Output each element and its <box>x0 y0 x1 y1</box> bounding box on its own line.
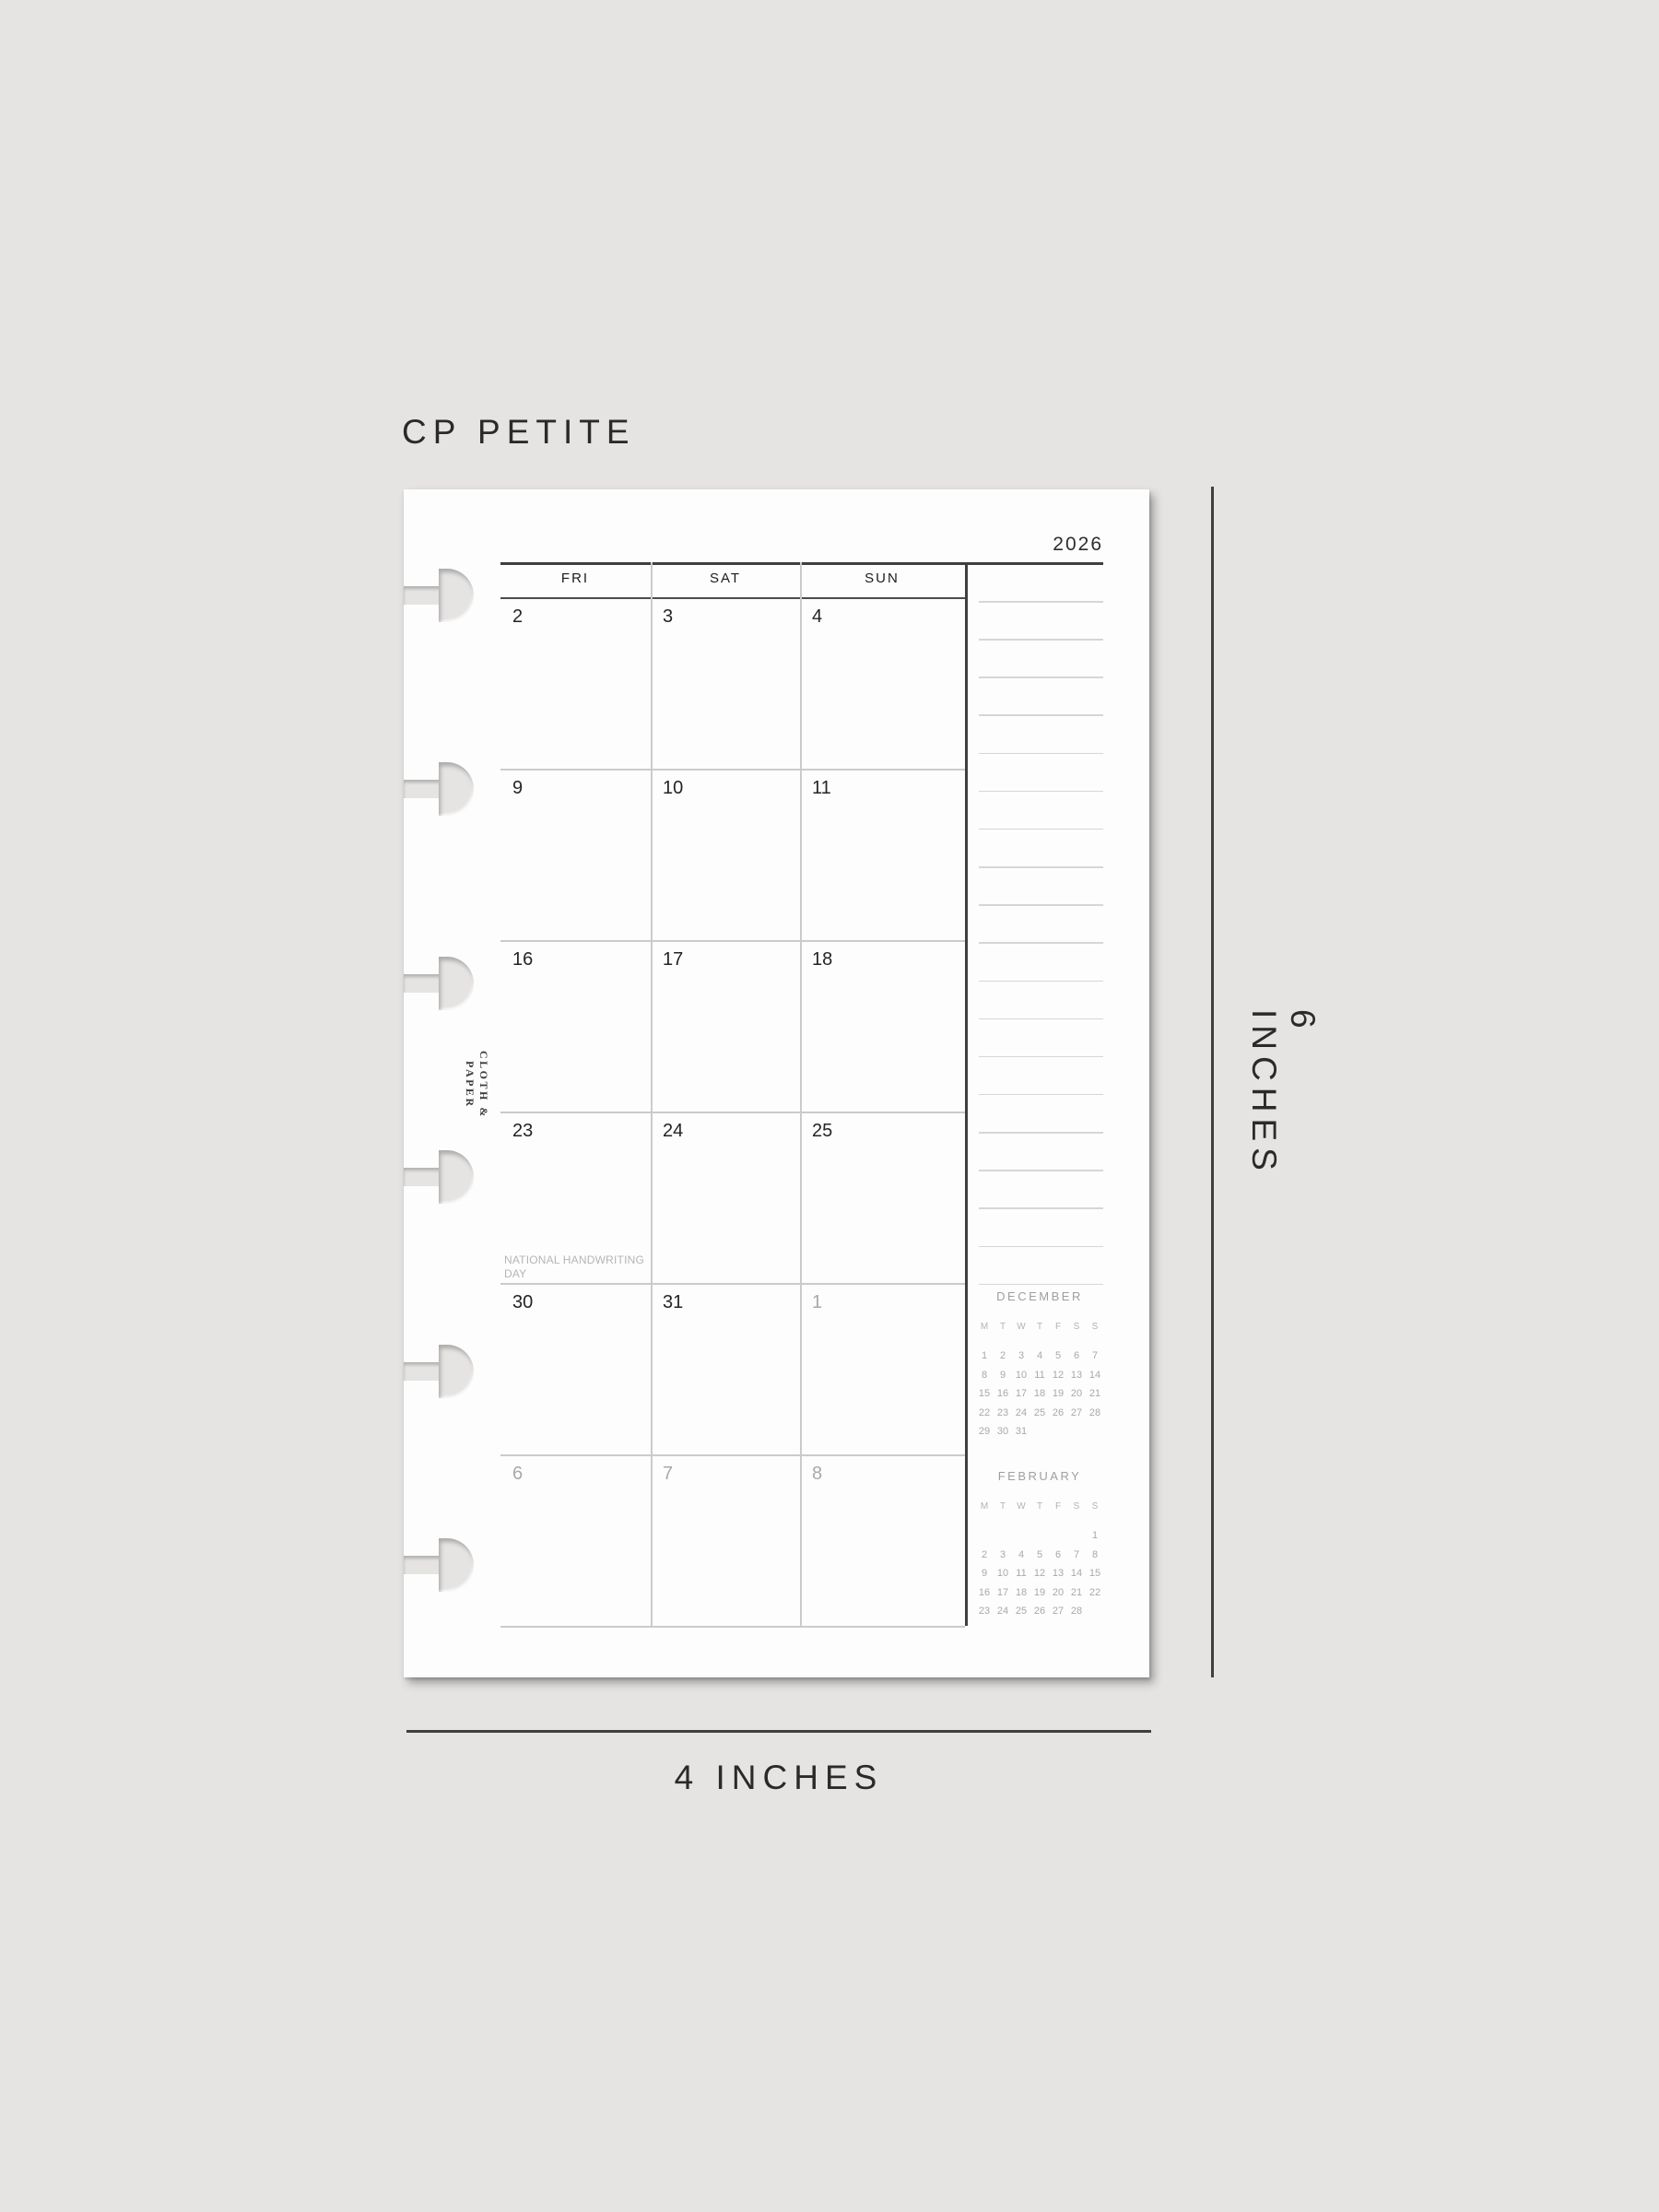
notes-line <box>979 1284 1103 1286</box>
mini-calendar-day <box>1067 1526 1086 1545</box>
calendar-date: 18 <box>812 949 832 971</box>
header-underline <box>500 597 965 599</box>
mini-week-row: 1234567 <box>975 1347 1104 1365</box>
mini-calendar-day: 12 <box>1049 1366 1067 1384</box>
mini-calendar-day: 3 <box>1012 1347 1030 1365</box>
mini-day-header: F <box>1049 1498 1067 1516</box>
mini-calendar-title: DECEMBER <box>975 1289 1104 1303</box>
notes-line <box>979 942 1103 944</box>
mini-calendar-day: 18 <box>1030 1384 1049 1403</box>
mini-week-row: 232425262728 <box>975 1602 1104 1620</box>
notes-line <box>979 677 1103 678</box>
disc-slot <box>404 974 441 993</box>
mini-calendar-day <box>1067 1422 1086 1441</box>
mini-calendar-day <box>1049 1526 1067 1545</box>
calendar-date: 11 <box>812 778 831 799</box>
mini-calendar-day: 23 <box>994 1404 1012 1422</box>
mini-calendar-day: 20 <box>1049 1583 1067 1602</box>
mini-calendar-day: 8 <box>1086 1546 1104 1564</box>
mini-calendar-day <box>1086 1422 1104 1441</box>
column-line <box>800 562 802 1626</box>
width-measure-line <box>406 1730 1151 1733</box>
disc-hole <box>439 1538 474 1592</box>
notes-line <box>979 1207 1103 1209</box>
mini-calendar-day <box>1012 1526 1030 1545</box>
notes-line <box>979 1246 1103 1248</box>
calendar-date: 16 <box>512 949 533 971</box>
mini-day-header: T <box>994 1498 1012 1516</box>
mini-day-header: T <box>1030 1318 1049 1336</box>
page-year: 2026 <box>1053 534 1103 556</box>
mini-week-row: 16171819202122 <box>975 1583 1104 1602</box>
mini-day-header: S <box>1086 1498 1104 1516</box>
notes-line <box>979 1094 1103 1096</box>
mini-calendar-day: 8 <box>975 1366 994 1384</box>
mini-calendar-day: 22 <box>975 1404 994 1422</box>
mini-day-header: F <box>1049 1318 1067 1336</box>
mini-calendar-day: 10 <box>994 1564 1012 1583</box>
mini-calendar-day <box>1049 1422 1067 1441</box>
mini-calendar-day: 6 <box>1049 1546 1067 1564</box>
notes-line <box>979 791 1103 793</box>
mini-calendar-day: 28 <box>1067 1602 1086 1620</box>
mini-calendar-day: 21 <box>1086 1384 1104 1403</box>
mini-calendar-day <box>994 1526 1012 1545</box>
notes-line <box>979 1170 1103 1171</box>
calendar-date: 17 <box>663 949 683 971</box>
mini-calendar-day: 20 <box>1067 1384 1086 1403</box>
mini-day-header-row: MTWTFSS <box>975 1498 1104 1516</box>
notes-line <box>979 714 1103 716</box>
mini-week-row: 15161718192021 <box>975 1384 1104 1403</box>
disc-slot <box>404 1362 441 1381</box>
weekend-notes-divider <box>965 562 968 1626</box>
mini-day-header: W <box>1012 1318 1030 1336</box>
disc-slot <box>404 1556 441 1574</box>
mini-calendar-day: 22 <box>1086 1583 1104 1602</box>
mini-calendar-day <box>1086 1602 1104 1620</box>
calendar-date: 3 <box>663 606 673 628</box>
day-header: SAT <box>710 571 741 586</box>
mini-calendar-day: 28 <box>1086 1404 1104 1422</box>
mini-week-row: 293031 <box>975 1422 1104 1441</box>
grid-top-line <box>500 562 1103 565</box>
mini-day-header-row: MTWTFSS <box>975 1318 1104 1336</box>
mini-week-row: 9101112131415 <box>975 1564 1104 1583</box>
disc-hole <box>439 762 474 816</box>
mini-calendar-day: 4 <box>1012 1546 1030 1564</box>
mini-calendar-day: 31 <box>1012 1422 1030 1441</box>
calendar-date: 8 <box>812 1464 822 1485</box>
mini-calendar-day: 16 <box>975 1583 994 1602</box>
disc-slot <box>404 586 441 605</box>
mini-day-header: S <box>1067 1498 1086 1516</box>
mini-calendar-day: 4 <box>1030 1347 1049 1365</box>
width-dimension-label: 4 INCHES <box>406 1759 1151 1797</box>
mini-calendar-day: 10 <box>1012 1366 1030 1384</box>
notes-line <box>979 904 1103 906</box>
mini-calendar-day: 21 <box>1067 1583 1086 1602</box>
mini-calendar-day: 6 <box>1067 1347 1086 1365</box>
disc-slot <box>404 780 441 798</box>
calendar-date: 2 <box>512 606 523 628</box>
mini-calendar-day: 2 <box>975 1546 994 1564</box>
column-line <box>651 562 653 1626</box>
mini-calendar-day: 23 <box>975 1602 994 1620</box>
mini-calendar-day <box>975 1526 994 1545</box>
notes-line <box>979 829 1103 830</box>
mini-week-row: 1 <box>975 1526 1104 1545</box>
mini-calendar-day <box>1030 1422 1049 1441</box>
product-mockup: { "mockup": { "size_label": "CP PETITE",… <box>0 0 1659 2212</box>
row-line <box>500 1112 965 1113</box>
disc-hole <box>439 1345 474 1398</box>
notes-line <box>979 601 1103 603</box>
mini-calendar-day: 17 <box>1012 1384 1030 1403</box>
brand-logo-vertical: CLOTH & PAPER <box>466 1030 490 1140</box>
mini-calendar-day: 27 <box>1049 1602 1067 1620</box>
notes-line <box>979 1056 1103 1058</box>
mini-day-header: S <box>1086 1318 1104 1336</box>
day-header: FRI <box>561 571 589 586</box>
calendar-date: 7 <box>663 1464 673 1485</box>
mini-calendar-day: 17 <box>994 1583 1012 1602</box>
mini-calendar-day: 2 <box>994 1347 1012 1365</box>
calendar-date: 10 <box>663 778 683 799</box>
mini-calendar: FEBRUARYMTWTFSS1234567891011121314151617… <box>975 1469 1104 1635</box>
mini-calendar-day: 27 <box>1067 1404 1086 1422</box>
mini-calendar-day: 14 <box>1086 1366 1104 1384</box>
disc-slot <box>404 1168 441 1186</box>
disc-hole <box>439 1150 474 1204</box>
mini-calendar-day: 26 <box>1049 1404 1067 1422</box>
mini-calendar-day: 14 <box>1067 1564 1086 1583</box>
notes-line <box>979 639 1103 641</box>
mini-calendar-day: 9 <box>994 1366 1012 1384</box>
mini-day-header: W <box>1012 1498 1030 1516</box>
mini-calendar-day: 19 <box>1030 1583 1049 1602</box>
row-line <box>500 1454 965 1456</box>
calendar-date: 9 <box>512 778 523 799</box>
row-line <box>500 769 965 771</box>
height-measure-line <box>1211 487 1214 1677</box>
mini-day-header: M <box>975 1318 994 1336</box>
mini-calendar-day: 16 <box>994 1384 1012 1403</box>
notes-line <box>979 981 1103 982</box>
mini-calendar-day: 25 <box>1030 1404 1049 1422</box>
notes-line <box>979 753 1103 755</box>
mini-calendar-day: 15 <box>975 1384 994 1403</box>
mini-day-header: M <box>975 1498 994 1516</box>
mini-calendar-day: 13 <box>1067 1366 1086 1384</box>
height-dimension-label: 6 INCHES <box>1244 1009 1322 1194</box>
mini-calendar-day: 7 <box>1067 1546 1086 1564</box>
calendar-date: 30 <box>512 1292 533 1313</box>
holiday-caption: NATIONAL HANDWRITING DAY <box>504 1253 650 1281</box>
row-line <box>500 1283 965 1285</box>
mini-calendar-day: 19 <box>1049 1384 1067 1403</box>
mini-calendar-day: 26 <box>1030 1602 1049 1620</box>
mini-calendar-day: 11 <box>1030 1366 1049 1384</box>
mini-calendar-day: 12 <box>1030 1564 1049 1583</box>
mini-calendar-day: 1 <box>975 1347 994 1365</box>
mini-calendar-day: 7 <box>1086 1347 1104 1365</box>
mini-day-header: T <box>994 1318 1012 1336</box>
mini-week-row: 891011121314 <box>975 1366 1104 1384</box>
mini-calendar-day: 5 <box>1030 1546 1049 1564</box>
mini-calendar-day: 24 <box>1012 1404 1030 1422</box>
mini-calendar-day: 5 <box>1049 1347 1067 1365</box>
mini-calendar-day: 15 <box>1086 1564 1104 1583</box>
calendar-date: 24 <box>663 1121 683 1142</box>
mini-calendar-title: FEBRUARY <box>975 1469 1104 1483</box>
disc-hole <box>439 957 474 1010</box>
mini-calendar-day: 3 <box>994 1546 1012 1564</box>
mini-calendar: DECEMBERMTWTFSS1234567891011121314151617… <box>975 1289 1104 1455</box>
mini-week-row: 2345678 <box>975 1546 1104 1564</box>
mini-calendar-day <box>1030 1526 1049 1545</box>
calendar-date: 25 <box>812 1121 832 1142</box>
calendar-date: 31 <box>663 1292 683 1313</box>
calendar-date: 23 <box>512 1121 533 1142</box>
mini-calendar-day: 13 <box>1049 1564 1067 1583</box>
mini-calendar-day: 9 <box>975 1564 994 1583</box>
row-line <box>500 1626 965 1628</box>
product-size-label: CP PETITE <box>402 413 636 452</box>
mini-day-header: S <box>1067 1318 1086 1336</box>
calendar-date: 4 <box>812 606 822 628</box>
mini-day-header: T <box>1030 1498 1049 1516</box>
mini-calendar-day: 18 <box>1012 1583 1030 1602</box>
notes-line <box>979 1132 1103 1134</box>
mini-calendar-day: 30 <box>994 1422 1012 1441</box>
calendar-date: 1 <box>812 1292 822 1313</box>
mini-week-row: 22232425262728 <box>975 1404 1104 1422</box>
notes-line <box>979 1018 1103 1020</box>
mini-calendar-day: 1 <box>1086 1526 1104 1545</box>
disc-hole <box>439 569 474 622</box>
notes-line <box>979 866 1103 868</box>
mini-calendar-day: 24 <box>994 1602 1012 1620</box>
planner-page: CLOTH & PAPER 2026 FRISATSUN234910111617… <box>404 489 1149 1677</box>
day-header: SUN <box>865 571 900 586</box>
mini-calendar-day: 29 <box>975 1422 994 1441</box>
mini-calendar-day: 11 <box>1012 1564 1030 1583</box>
calendar-date: 6 <box>512 1464 523 1485</box>
mini-calendar-day: 25 <box>1012 1602 1030 1620</box>
row-line <box>500 940 965 942</box>
